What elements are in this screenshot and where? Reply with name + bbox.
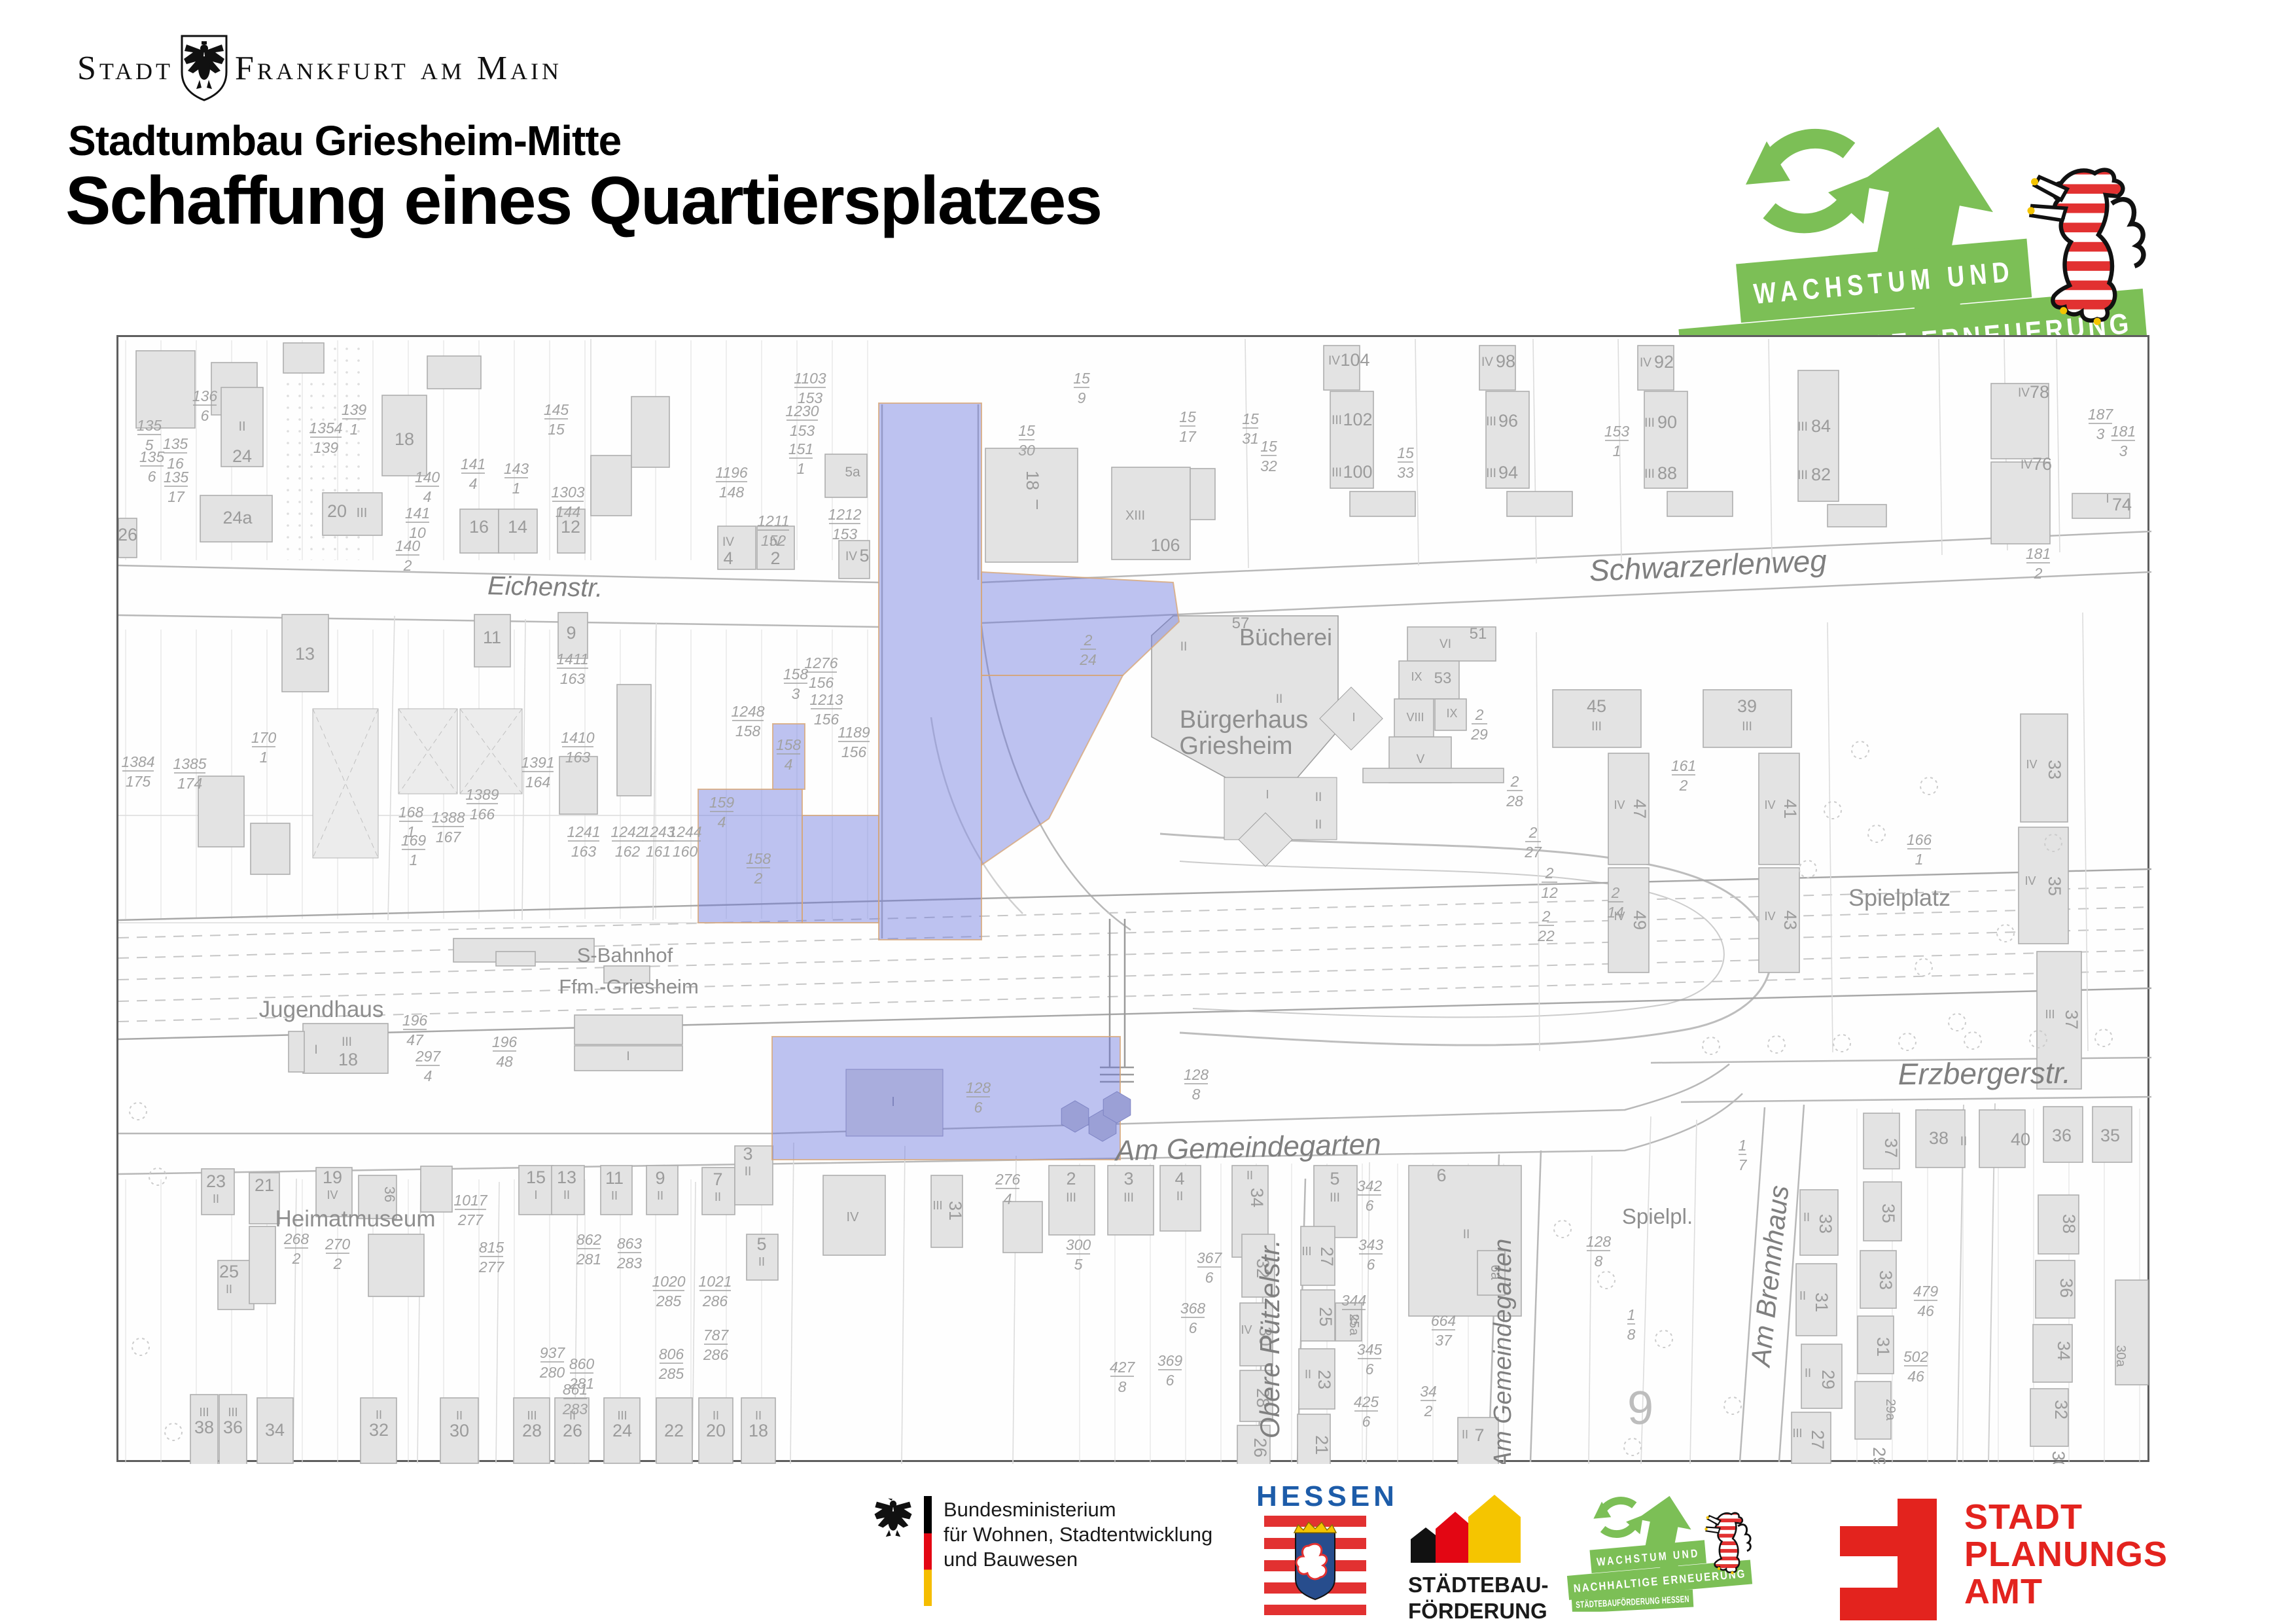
parcel-label: 1288 bbox=[1586, 1233, 1612, 1270]
svg-text:15: 15 bbox=[1018, 422, 1035, 439]
svg-text:300: 300 bbox=[1066, 1236, 1091, 1253]
svg-text:1276: 1276 bbox=[804, 654, 838, 671]
building-number: 21 bbox=[1312, 1435, 1332, 1455]
svg-text:161: 161 bbox=[1671, 757, 1696, 774]
building bbox=[1190, 469, 1215, 520]
building-number: II bbox=[1463, 1228, 1470, 1241]
parcel-label: 18 bbox=[1627, 1306, 1636, 1343]
building-number: 24 bbox=[232, 446, 252, 466]
svg-text:1385: 1385 bbox=[173, 755, 206, 772]
building-number: III bbox=[1332, 414, 1342, 427]
building bbox=[2115, 1280, 2148, 1385]
svg-text:1389: 1389 bbox=[465, 786, 499, 803]
svg-text:297: 297 bbox=[415, 1048, 442, 1065]
tree-icon bbox=[1852, 741, 1869, 758]
building-number: I bbox=[1035, 497, 1039, 512]
svg-text:135: 135 bbox=[164, 469, 189, 486]
building-number: IV bbox=[1764, 798, 1775, 811]
building-number: III bbox=[199, 1406, 209, 1419]
stadtplanungsamt-mark-icon bbox=[1840, 1499, 1937, 1620]
building-number: 13 bbox=[557, 1168, 576, 1187]
bund-line3: und Bauwesen bbox=[944, 1547, 1212, 1572]
hessen-arms-icon bbox=[1263, 1513, 1368, 1618]
frankfurt-eagle-shield-icon bbox=[180, 34, 228, 102]
svg-text:140: 140 bbox=[415, 469, 440, 486]
building-number: II bbox=[1276, 692, 1283, 706]
building-number: III bbox=[617, 1409, 627, 1422]
svg-text:15: 15 bbox=[1260, 438, 1277, 455]
parcel-line bbox=[1939, 339, 1942, 555]
svg-text:141: 141 bbox=[405, 505, 430, 522]
svg-text:4: 4 bbox=[785, 756, 793, 773]
svg-text:343: 343 bbox=[1358, 1236, 1384, 1253]
quartiersplatz-highlight bbox=[802, 815, 879, 923]
building-number: 2 bbox=[770, 548, 780, 568]
building-number: III bbox=[228, 1406, 238, 1419]
building-number: 18 bbox=[338, 1050, 358, 1069]
svg-text:2: 2 bbox=[1084, 632, 1093, 649]
parcel-label: 222 bbox=[1537, 908, 1555, 944]
building-number: 5 bbox=[859, 546, 869, 565]
building-number: 31 bbox=[1812, 1293, 1831, 1312]
building bbox=[1003, 1202, 1042, 1253]
building-number: 51 bbox=[1470, 625, 1487, 643]
building-number: IV bbox=[769, 535, 781, 549]
place-label: Griesheim bbox=[1179, 732, 1292, 760]
svg-text:161: 161 bbox=[646, 843, 671, 860]
svg-text:1410: 1410 bbox=[561, 729, 594, 746]
svg-text:158: 158 bbox=[746, 850, 771, 867]
tree-icon bbox=[130, 1103, 147, 1120]
street-label: Obere Rützelstr. bbox=[1254, 1240, 1285, 1438]
svg-text:2: 2 bbox=[403, 557, 412, 574]
svg-text:163: 163 bbox=[565, 749, 591, 766]
building-number: 104 bbox=[1340, 350, 1369, 370]
svg-text:17: 17 bbox=[1179, 428, 1197, 445]
building-number: IX bbox=[1446, 707, 1457, 720]
svg-text:169: 169 bbox=[401, 832, 427, 849]
place-label: Spielpl. bbox=[1622, 1204, 1693, 1228]
building bbox=[368, 1234, 424, 1296]
svg-text:1241: 1241 bbox=[567, 823, 600, 840]
building-number: IV bbox=[845, 550, 857, 563]
building-number: 106 bbox=[1150, 535, 1180, 555]
parcel-label: 229 bbox=[1470, 706, 1488, 743]
building-number: III bbox=[342, 1035, 352, 1049]
building-number: II bbox=[1315, 818, 1322, 832]
parcel-label: 1531 bbox=[1604, 423, 1630, 459]
building-number: 27 bbox=[1808, 1430, 1828, 1450]
svg-text:1411: 1411 bbox=[556, 651, 588, 668]
parcel-line bbox=[1690, 1120, 1697, 1464]
building-number: II bbox=[713, 1409, 719, 1422]
building-number: 32 bbox=[2051, 1400, 2071, 1419]
tree-icon bbox=[1655, 1330, 1672, 1347]
building-number: 25a bbox=[1347, 1313, 1361, 1336]
building-number: 47 bbox=[1630, 799, 1650, 819]
svg-text:369: 369 bbox=[1157, 1352, 1183, 1369]
growth-renewal-logo-small bbox=[1563, 1489, 1759, 1613]
building-number: III bbox=[527, 1409, 537, 1422]
building-number: 26 bbox=[1250, 1438, 1270, 1457]
building-number: 9 bbox=[566, 623, 576, 643]
svg-text:1: 1 bbox=[410, 851, 418, 868]
svg-text:1391: 1391 bbox=[521, 754, 554, 771]
svg-text:8: 8 bbox=[1595, 1253, 1603, 1270]
parcel-line bbox=[1415, 339, 1419, 565]
svg-text:1103: 1103 bbox=[794, 370, 826, 387]
building-number: I bbox=[1352, 711, 1355, 724]
tree-icon bbox=[1899, 1033, 1916, 1050]
building-number: 16 bbox=[469, 517, 489, 537]
svg-text:2: 2 bbox=[1528, 824, 1538, 841]
building bbox=[1363, 768, 1504, 783]
parcel-label: 19648 bbox=[492, 1033, 518, 1070]
building bbox=[496, 952, 535, 966]
svg-text:15: 15 bbox=[1397, 444, 1414, 461]
hessen-logo: HESSEN bbox=[1256, 1480, 1374, 1621]
svg-text:6: 6 bbox=[1366, 1361, 1374, 1378]
building-number: 9 bbox=[655, 1168, 665, 1188]
svg-text:4: 4 bbox=[718, 813, 726, 830]
building-number: II bbox=[1805, 1366, 1811, 1380]
building-number: 39 bbox=[1737, 696, 1757, 716]
tree-icon bbox=[1824, 802, 1841, 819]
building-number: 4 bbox=[723, 548, 733, 568]
svg-text:1242: 1242 bbox=[610, 823, 644, 840]
building-number: IV bbox=[1241, 1323, 1252, 1336]
svg-text:158: 158 bbox=[776, 736, 802, 753]
quartiersplatz-highlight bbox=[981, 675, 1123, 865]
building-number: 37 bbox=[2062, 1010, 2081, 1029]
svg-text:1: 1 bbox=[1739, 1137, 1747, 1154]
building-number: 43 bbox=[1780, 910, 1800, 930]
building-number: III bbox=[1797, 420, 1808, 434]
svg-text:22: 22 bbox=[1537, 927, 1555, 944]
building-number: IV bbox=[1764, 910, 1775, 923]
building-number: 3 bbox=[743, 1144, 752, 1164]
svg-text:156: 156 bbox=[841, 743, 867, 760]
svg-text:1017: 1017 bbox=[453, 1192, 487, 1209]
parcel-line bbox=[1245, 339, 1248, 568]
building-number: 36 bbox=[2057, 1278, 2076, 1298]
parcel-label: 1533 bbox=[1397, 444, 1414, 481]
parcel-label: 212 bbox=[1541, 865, 1558, 901]
place-label: Bücherei bbox=[1239, 624, 1332, 651]
svg-text:277: 277 bbox=[478, 1258, 505, 1275]
building-number: IV bbox=[1614, 798, 1625, 811]
building-number: 100 bbox=[1343, 462, 1372, 482]
parcel-line bbox=[1828, 622, 1833, 1052]
building-number: II bbox=[1462, 1428, 1468, 1441]
svg-text:345: 345 bbox=[1357, 1341, 1383, 1358]
svg-text:1212: 1212 bbox=[828, 506, 861, 523]
building-number: 3 bbox=[1123, 1169, 1133, 1188]
building-number: 36 bbox=[2052, 1126, 2072, 1145]
building-number: 102 bbox=[1343, 410, 1372, 429]
building bbox=[591, 455, 631, 516]
tree-icon bbox=[1868, 825, 1885, 842]
parcel-line bbox=[902, 1146, 905, 1464]
building-number: 21 bbox=[255, 1175, 274, 1195]
svg-text:135: 135 bbox=[137, 417, 162, 434]
svg-text:8: 8 bbox=[1192, 1086, 1201, 1103]
svg-text:158: 158 bbox=[783, 666, 809, 683]
building-number: 96 bbox=[1498, 411, 1518, 431]
svg-text:153: 153 bbox=[832, 526, 858, 543]
quartiersplatz-highlight bbox=[879, 403, 981, 940]
building-number: 88 bbox=[1657, 463, 1677, 483]
svg-text:664: 664 bbox=[1431, 1312, 1456, 1329]
building-number: 33 bbox=[2045, 760, 2064, 779]
street-label: Eichenstr. bbox=[487, 571, 603, 603]
building-number: 30a bbox=[2113, 1345, 2128, 1367]
svg-text:2: 2 bbox=[1679, 777, 1688, 794]
building-number: II bbox=[563, 1188, 570, 1202]
tree-icon bbox=[1624, 1438, 1641, 1455]
svg-text:159: 159 bbox=[709, 794, 735, 811]
svg-text:4: 4 bbox=[1004, 1190, 1012, 1207]
building-number: 5a bbox=[845, 465, 860, 480]
svg-text:862: 862 bbox=[576, 1231, 602, 1248]
svg-text:31: 31 bbox=[1242, 430, 1259, 447]
svg-text:30: 30 bbox=[1018, 442, 1035, 459]
building-number: IV bbox=[847, 1210, 860, 1224]
svg-text:4: 4 bbox=[469, 475, 478, 492]
building bbox=[985, 448, 1078, 562]
parcel-line bbox=[1533, 339, 1536, 563]
svg-text:143: 143 bbox=[504, 460, 529, 477]
place-label: Spielplatz bbox=[1848, 884, 1951, 911]
svg-text:145: 145 bbox=[544, 401, 569, 418]
building bbox=[574, 1015, 682, 1044]
building bbox=[1667, 491, 1733, 516]
building-number: 31 bbox=[1873, 1337, 1893, 1357]
building-number: III bbox=[1301, 1245, 1311, 1258]
svg-text:368: 368 bbox=[1180, 1300, 1206, 1317]
building-number: 94 bbox=[1498, 463, 1518, 482]
building-number: I bbox=[534, 1188, 537, 1202]
svg-text:3: 3 bbox=[792, 685, 800, 702]
svg-text:24: 24 bbox=[1079, 651, 1097, 668]
tree-icon bbox=[1768, 1036, 1785, 1053]
svg-text:28: 28 bbox=[1506, 793, 1523, 810]
svg-text:425: 425 bbox=[1354, 1393, 1379, 1410]
svg-text:128: 128 bbox=[966, 1079, 991, 1096]
place-label: 9 bbox=[1627, 1382, 1653, 1435]
building-number: 15 bbox=[526, 1168, 546, 1187]
parcel-label: 227 bbox=[1524, 824, 1542, 861]
building-number: 20 bbox=[327, 501, 347, 521]
svg-text:285: 285 bbox=[656, 1293, 682, 1310]
building bbox=[1991, 462, 2050, 544]
building-number: I bbox=[2106, 492, 2109, 505]
building-number: II bbox=[745, 1165, 752, 1179]
parcel-line bbox=[1589, 1156, 1592, 1464]
building-number: 20 bbox=[706, 1421, 726, 1440]
building-number: 29 bbox=[1869, 1447, 1889, 1464]
parcel-label: 1612 bbox=[1671, 757, 1696, 794]
svg-text:2: 2 bbox=[1545, 865, 1554, 882]
building-number: II bbox=[1960, 1135, 1968, 1149]
svg-text:787: 787 bbox=[703, 1327, 730, 1344]
svg-text:5: 5 bbox=[1074, 1256, 1083, 1273]
poster-subtitle: Stadtumbau Griesheim-Mitte bbox=[68, 116, 621, 165]
svg-text:863: 863 bbox=[617, 1235, 643, 1252]
building-number: 14 bbox=[508, 517, 527, 537]
svg-text:15: 15 bbox=[1242, 410, 1259, 427]
parcel-label: 2974 bbox=[415, 1048, 442, 1084]
svg-text:175: 175 bbox=[126, 773, 151, 790]
svg-text:6: 6 bbox=[1205, 1269, 1214, 1286]
svg-text:15: 15 bbox=[1073, 370, 1090, 387]
svg-text:151: 151 bbox=[788, 440, 813, 457]
building-number: IV bbox=[1328, 354, 1340, 368]
city-logo-word-stadt: Stadt bbox=[77, 49, 173, 88]
site-plan-map: 1366135513516135613517135413913911404141… bbox=[116, 335, 2149, 1462]
svg-text:277: 277 bbox=[457, 1211, 484, 1228]
bund-line2: für Wohnen, Stadtentwicklung bbox=[944, 1522, 1212, 1547]
street-label: Am Gemeindegarten bbox=[1113, 1128, 1381, 1168]
building-number: 35 bbox=[2100, 1126, 2120, 1145]
building-number: 38 bbox=[2059, 1214, 2079, 1234]
svg-text:281: 281 bbox=[576, 1251, 601, 1268]
svg-text:148: 148 bbox=[719, 484, 745, 501]
building-number: 82 bbox=[1811, 465, 1831, 484]
svg-text:285: 285 bbox=[658, 1365, 684, 1382]
building-number: IV bbox=[327, 1188, 338, 1202]
building-number: II bbox=[376, 1408, 382, 1421]
building-number: 2 bbox=[1066, 1169, 1076, 1188]
parcel-label: 1517 bbox=[1179, 408, 1197, 445]
svg-text:8: 8 bbox=[1627, 1326, 1636, 1343]
building-number: VI bbox=[1439, 637, 1451, 651]
building-number: 18 bbox=[1023, 471, 1042, 490]
building-number: 18 bbox=[749, 1421, 768, 1440]
svg-text:344: 344 bbox=[1341, 1292, 1366, 1309]
building-number: 36 bbox=[381, 1186, 398, 1202]
svg-text:1021: 1021 bbox=[698, 1273, 732, 1290]
tree-icon bbox=[1833, 1035, 1850, 1052]
svg-text:46: 46 bbox=[1917, 1302, 1934, 1319]
building-number: IV bbox=[1481, 355, 1493, 369]
building-number: 12 bbox=[561, 517, 580, 537]
parcel-label: 1530 bbox=[1018, 422, 1035, 459]
building-number: IV bbox=[1640, 356, 1651, 370]
svg-text:156: 156 bbox=[814, 711, 839, 728]
building bbox=[617, 685, 651, 796]
building bbox=[251, 823, 290, 874]
svg-text:166: 166 bbox=[1907, 831, 1932, 848]
building-number: III bbox=[1644, 416, 1655, 430]
building-number: II bbox=[1180, 640, 1188, 654]
building-number: 92 bbox=[1654, 352, 1674, 372]
building-number: 53 bbox=[1434, 669, 1452, 687]
svg-text:1: 1 bbox=[512, 480, 521, 497]
svg-text:1: 1 bbox=[1915, 851, 1924, 868]
building-number: II bbox=[1176, 1190, 1184, 1204]
building-number: 35 bbox=[1879, 1204, 1898, 1223]
building-number: II bbox=[715, 1190, 721, 1204]
building bbox=[283, 343, 324, 373]
building-number: IV bbox=[2018, 386, 2030, 400]
building bbox=[1828, 505, 1886, 527]
building-number: II bbox=[657, 1189, 663, 1202]
building-number: III bbox=[1644, 467, 1655, 481]
building-number: 25 bbox=[1316, 1307, 1335, 1327]
building-number: 24a bbox=[222, 508, 253, 527]
building-number: 11 bbox=[483, 628, 501, 647]
building-number: III bbox=[1330, 1191, 1340, 1205]
bundesadler-icon bbox=[872, 1496, 915, 1538]
building-number: 11 bbox=[605, 1168, 624, 1188]
building-number: IV bbox=[722, 535, 734, 549]
building-number: 34 bbox=[265, 1420, 285, 1440]
building-number: 38 bbox=[1929, 1128, 1949, 1148]
svg-text:1303: 1303 bbox=[551, 484, 584, 501]
svg-text:1020: 1020 bbox=[652, 1273, 685, 1290]
svg-text:6: 6 bbox=[974, 1099, 983, 1116]
svg-text:187: 187 bbox=[2088, 406, 2114, 423]
building-number: 36 bbox=[223, 1418, 243, 1437]
svg-text:286: 286 bbox=[703, 1346, 729, 1363]
svg-text:806: 806 bbox=[659, 1346, 684, 1363]
building-number: IV bbox=[2021, 458, 2032, 472]
parcel-label: 1813 bbox=[2111, 423, 2136, 459]
svg-text:1354: 1354 bbox=[309, 419, 342, 437]
tree-icon bbox=[1554, 1221, 1571, 1238]
svg-text:9: 9 bbox=[1078, 389, 1086, 406]
building-number: 5 bbox=[756, 1234, 766, 1254]
svg-text:276: 276 bbox=[995, 1171, 1021, 1188]
svg-text:1196: 1196 bbox=[715, 464, 748, 481]
svg-text:367: 367 bbox=[1197, 1249, 1223, 1266]
bundesministerium-logo: Bundesministerium für Wohnen, Stadtentwi… bbox=[872, 1496, 1212, 1606]
svg-text:15: 15 bbox=[1179, 408, 1196, 425]
building-number: IV bbox=[2026, 758, 2037, 771]
svg-text:153: 153 bbox=[790, 422, 815, 439]
svg-text:168: 168 bbox=[398, 804, 424, 821]
building-number: 32 bbox=[369, 1420, 389, 1440]
building-number: III bbox=[1797, 469, 1808, 482]
building-crossed bbox=[460, 709, 522, 794]
parcel-label: 1531 bbox=[1242, 410, 1259, 447]
building-crossed bbox=[398, 709, 457, 794]
building-number: 90 bbox=[1657, 412, 1677, 432]
parcel-label: 19647 bbox=[402, 1012, 428, 1048]
tree-icon bbox=[1964, 1032, 1981, 1049]
building-number: II bbox=[1315, 791, 1322, 804]
svg-text:6: 6 bbox=[1166, 1372, 1174, 1389]
building-number: 35 bbox=[2045, 876, 2064, 896]
place-label: Ffm.-Griesheim bbox=[559, 975, 699, 998]
building-number: 31 bbox=[945, 1201, 965, 1221]
tree-icon bbox=[2095, 1029, 2112, 1046]
svg-text:6: 6 bbox=[148, 468, 156, 485]
building-number: 98 bbox=[1496, 351, 1515, 371]
svg-text:27: 27 bbox=[1524, 844, 1542, 861]
tree-icon bbox=[1799, 861, 1816, 878]
svg-text:32: 32 bbox=[1260, 457, 1277, 474]
building-number: 34 bbox=[2054, 1341, 2074, 1361]
svg-text:1211: 1211 bbox=[757, 512, 789, 529]
staedtebau-line2: FÖRDERUNG bbox=[1408, 1598, 1551, 1623]
svg-text:17: 17 bbox=[168, 488, 185, 505]
parcel-label: 1532 bbox=[1260, 438, 1277, 474]
building bbox=[421, 1166, 452, 1212]
svg-text:46: 46 bbox=[1907, 1368, 1924, 1385]
building-number: I bbox=[1265, 788, 1269, 801]
